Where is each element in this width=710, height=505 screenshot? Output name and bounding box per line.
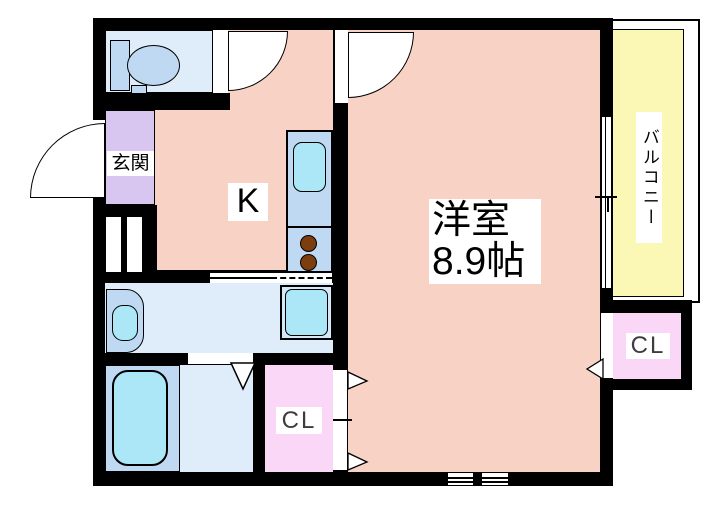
balcony-window-tick (595, 196, 617, 198)
room-door-gap (335, 30, 348, 103)
partition-line-solid (210, 277, 271, 279)
front-door-swing-icon (30, 123, 105, 198)
floorplan-canvas: 玄関 K CL 洋室 8.9帖 (0, 0, 710, 505)
counter-divider (286, 226, 333, 228)
closet-right-arrow-icon (586, 358, 604, 380)
shaft-slot-2 (127, 217, 142, 272)
toilet-bowl-icon (127, 45, 180, 86)
kitchen-label: K (228, 183, 268, 221)
stove-burner-icon-2 (300, 254, 317, 271)
closet-door-arrow-icon-2 (347, 452, 369, 472)
utility-shaft (93, 205, 157, 283)
closet-bottom-door-tick (333, 419, 352, 421)
stove-burner-icon-1 (300, 235, 317, 252)
bottom-window-mullion (473, 473, 482, 485)
toilet-door-gap (213, 30, 228, 93)
washing-machine-inner (285, 289, 328, 336)
balcony-label: バルコニー (636, 112, 662, 243)
western-room-label: 洋室 8.9帖 (429, 199, 541, 284)
closet-right-label: CL (626, 333, 670, 359)
bathtub-icon (112, 370, 168, 466)
closet-bottom-label: CL (276, 407, 322, 434)
balcony-window-rail (605, 117, 606, 288)
western-room-name: 洋室 (432, 201, 510, 242)
entrance-label: 玄関 (107, 151, 154, 176)
kitchen-sink-icon (293, 142, 326, 192)
western-room-size: 8.9帖 (432, 242, 525, 283)
balcony-window-stub (607, 196, 609, 212)
wash-basin-icon (112, 305, 138, 341)
partition-line-dashed (271, 277, 332, 279)
closet-door-arrow-icon-1 (347, 371, 369, 391)
bath-door-fold-icon (230, 362, 256, 390)
wall-below-toilet (93, 93, 230, 110)
shaft-slot-1 (106, 217, 121, 272)
